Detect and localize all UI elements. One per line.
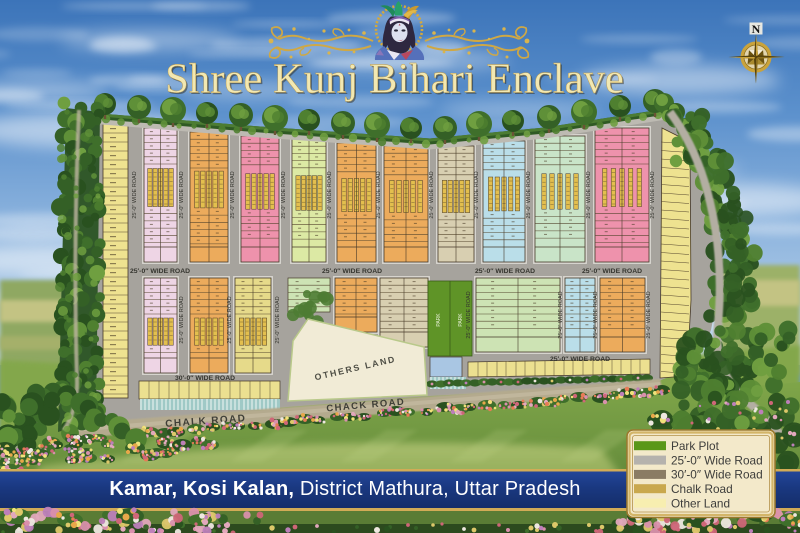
svg-text:25′-0″ WIDE ROAD: 25′-0″ WIDE ROAD	[322, 268, 382, 275]
svg-text:PARK: PARK	[436, 313, 442, 327]
svg-text:25′-0″ WIDE ROAD: 25′-0″ WIDE ROAD	[230, 171, 236, 218]
svg-text:25′-0″ WIDE ROAD: 25′-0″ WIDE ROAD	[130, 268, 190, 275]
svg-text:25′-0″ WIDE ROAD: 25′-0″ WIDE ROAD	[179, 171, 185, 218]
svg-text:Kamar, Kosi Kalan, District Ma: Kamar, Kosi Kalan, District Mathura, Utt…	[109, 478, 580, 500]
svg-text:25′-0″ WIDE ROAD: 25′-0″ WIDE ROAD	[550, 356, 610, 363]
svg-text:Other Land: Other Land	[671, 496, 730, 510]
svg-text:25′-0″ WIDE ROAD: 25′-0″ WIDE ROAD	[475, 268, 535, 275]
svg-text:25′-0″ WIDE ROAD: 25′-0″ WIDE ROAD	[586, 171, 592, 218]
svg-text:25′-0″ WIDE ROAD: 25′-0″ WIDE ROAD	[650, 171, 656, 218]
svg-text:25′-0″ WIDE ROAD: 25′-0″ WIDE ROAD	[132, 171, 138, 218]
svg-text:N: N	[752, 22, 761, 36]
svg-text:25′-0″ WIDE ROAD: 25′-0″ WIDE ROAD	[466, 291, 472, 338]
svg-text:25′-0″ WIDE ROAD: 25′-0″ WIDE ROAD	[526, 171, 532, 218]
svg-text:25′-0″ WIDE ROAD: 25′-0″ WIDE ROAD	[582, 268, 642, 275]
svg-text:30′-0″ Wide Road: 30′-0″ Wide Road	[671, 468, 763, 482]
svg-text:30′-0″ WIDE ROAD: 30′-0″ WIDE ROAD	[175, 375, 235, 382]
svg-text:25′-0″ WIDE ROAD: 25′-0″ WIDE ROAD	[429, 171, 435, 218]
svg-text:25′-0″ WIDE ROAD: 25′-0″ WIDE ROAD	[558, 291, 564, 338]
svg-text:Chalk Road: Chalk Road	[671, 482, 733, 496]
svg-text:Park Plot: Park Plot	[671, 439, 720, 453]
svg-text:25′-0″ WIDE ROAD: 25′-0″ WIDE ROAD	[327, 171, 333, 218]
svg-text:25′-0″ WIDE ROAD: 25′-0″ WIDE ROAD	[275, 296, 281, 343]
svg-text:25′-0″ Wide Road: 25′-0″ Wide Road	[671, 453, 763, 467]
svg-text:25′-0″ WIDE ROAD: 25′-0″ WIDE ROAD	[474, 171, 480, 218]
svg-text:25′-0″ WIDE ROAD: 25′-0″ WIDE ROAD	[281, 171, 287, 218]
svg-text:25′-0″ WIDE ROAD: 25′-0″ WIDE ROAD	[646, 291, 652, 338]
svg-text:Shree Kunj Bihari Enclave: Shree Kunj Bihari Enclave	[165, 56, 624, 103]
svg-text:25′-0″ WIDE ROAD: 25′-0″ WIDE ROAD	[227, 296, 233, 343]
svg-text:PARK: PARK	[458, 313, 464, 327]
svg-text:25′-0″ WIDE ROAD: 25′-0″ WIDE ROAD	[376, 171, 382, 218]
svg-text:25′-0″ WIDE ROAD: 25′-0″ WIDE ROAD	[593, 291, 599, 338]
svg-text:25′-0″ WIDE ROAD: 25′-0″ WIDE ROAD	[179, 296, 185, 343]
